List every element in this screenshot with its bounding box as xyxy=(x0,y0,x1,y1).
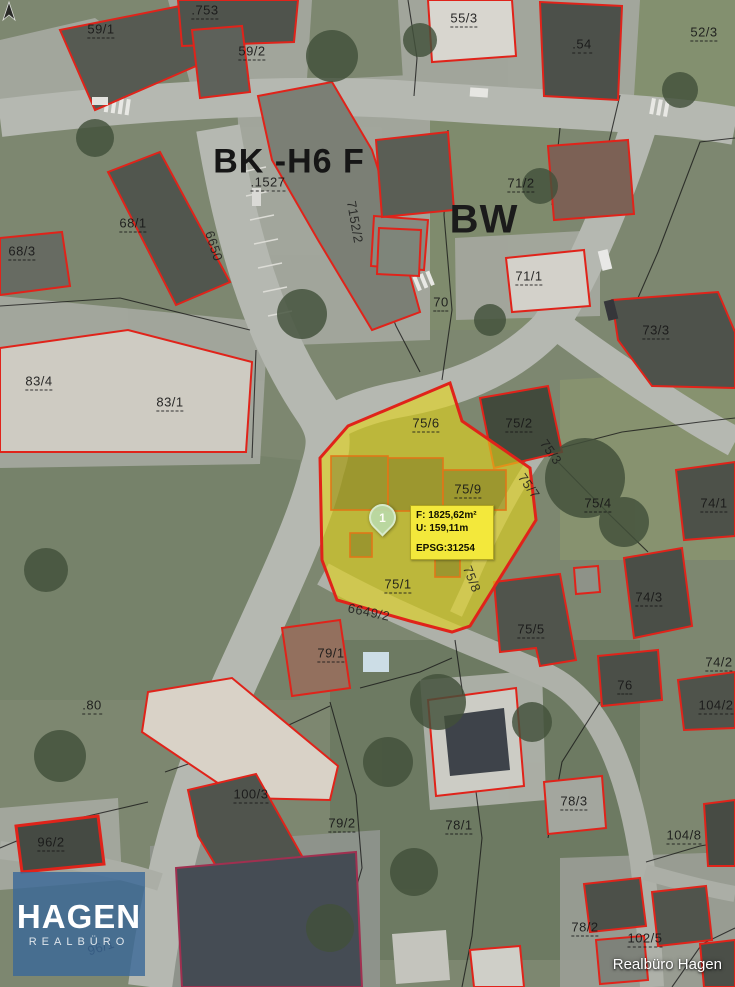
parcel-area-value: F: 1825,62m² xyxy=(416,509,488,522)
parcel-perimeter-value: U: 159,11m xyxy=(416,522,488,535)
north-arrow-icon xyxy=(0,0,18,24)
map-credit: Realbüro Hagen xyxy=(613,956,722,973)
hagen-logo-subtitle: REALBÜRO xyxy=(29,936,130,948)
map-viewport[interactable]: .75359/159/255/3.5452/3BK -H6 F.152771/2… xyxy=(0,0,735,987)
hagen-logo: HAGEN REALBÜRO xyxy=(13,872,145,976)
hagen-logo-title: HAGEN xyxy=(17,900,141,933)
info-box-spacer xyxy=(416,535,488,542)
parcel-epsg-value: EPSG:31254 xyxy=(416,542,488,555)
parcel-info-box: F: 1825,62m² U: 159,11m EPSG:31254 xyxy=(410,505,494,560)
parcel-marker-label: 1 xyxy=(371,506,394,529)
aerial-map xyxy=(0,0,735,987)
